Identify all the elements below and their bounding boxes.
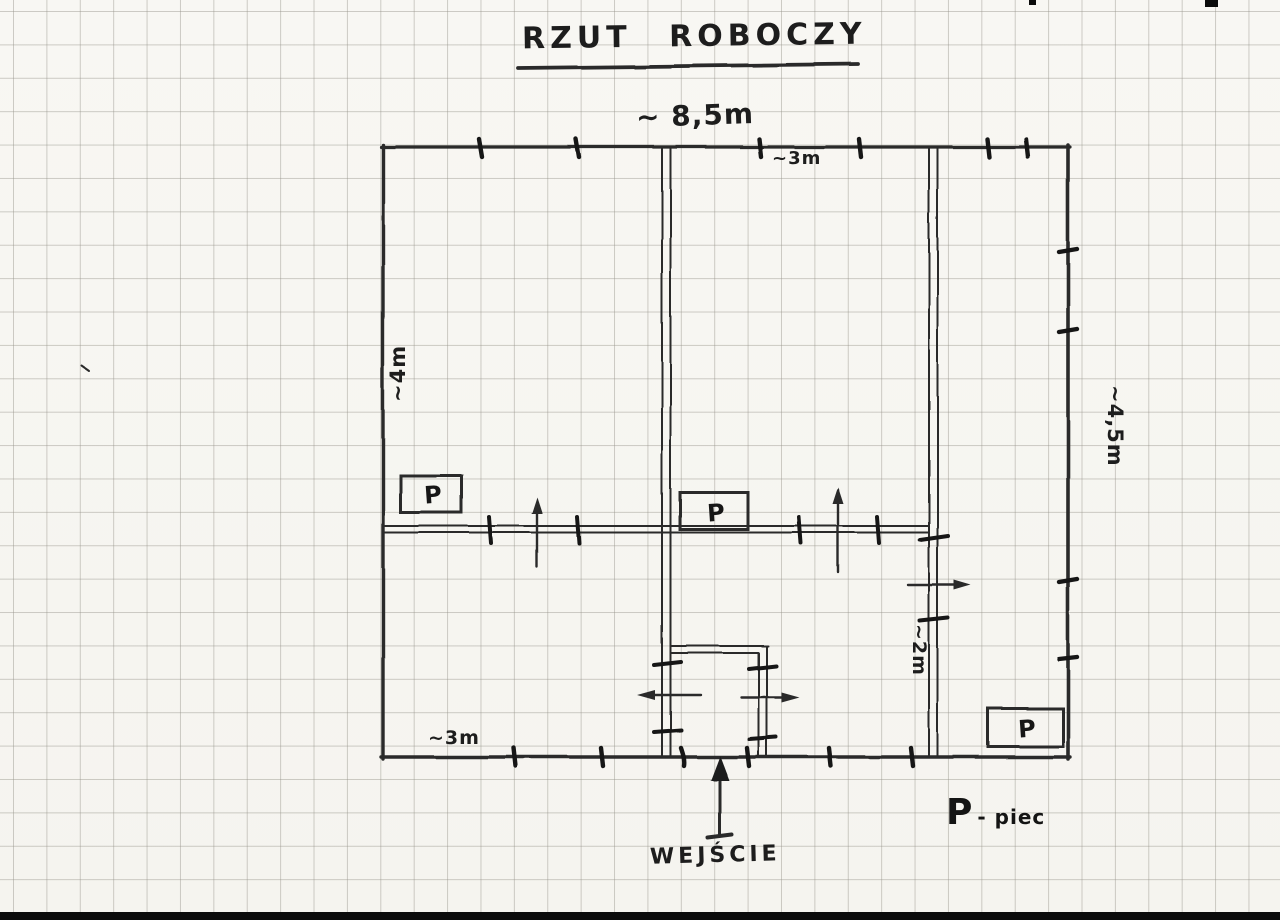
- window-tick: [829, 748, 831, 766]
- interior-wall-horizontal: [383, 526, 929, 533]
- plan-title: RZUT ROBOCZY: [522, 20, 867, 55]
- dimension-top-overall: ~ 8,5m: [636, 100, 755, 132]
- stove-label-3: P: [1017, 714, 1037, 743]
- floor-plan-drawing: [0, 0, 1280, 920]
- title-underline: [518, 64, 858, 68]
- door-tick: [654, 730, 681, 732]
- stove-boxes: [401, 476, 1064, 747]
- window-tick: [1059, 329, 1077, 332]
- arrow-head: [954, 580, 971, 590]
- dimension-hallway-width: ~2m: [909, 624, 928, 676]
- door-tick: [577, 517, 579, 543]
- door-tick: [920, 618, 948, 621]
- window-tick: [576, 139, 579, 157]
- window-tick: [1059, 579, 1077, 582]
- window-tick: [1059, 249, 1077, 252]
- window-tick: [514, 748, 516, 766]
- door-tick: [489, 517, 491, 543]
- window-tick: [747, 748, 749, 766]
- arrow-head: [781, 692, 799, 702]
- scan-edge-strip: [0, 912, 1280, 920]
- door-tick: [749, 666, 776, 669]
- interior-wall-vertical-2: [929, 147, 938, 757]
- window-tick: [681, 748, 684, 766]
- dimension-top-right: ~3m: [772, 150, 821, 168]
- outer-walls: [381, 145, 1070, 759]
- window-tick: [987, 139, 989, 157]
- arrow-head: [637, 690, 655, 700]
- legend-piec: P - piec: [946, 792, 1045, 833]
- window-tick: [1026, 139, 1028, 157]
- arrow-head: [711, 756, 730, 781]
- window-tick: [1059, 657, 1077, 659]
- arrow-head: [833, 487, 844, 504]
- door-tick: [749, 737, 776, 739]
- stove-label-2: P: [706, 498, 726, 527]
- scan-mark: [1205, 0, 1218, 7]
- window-tick: [911, 748, 913, 766]
- window-ticks: [479, 139, 1077, 766]
- arrow-head: [532, 497, 543, 514]
- legend-meaning: - piec: [977, 805, 1045, 829]
- entrance-label: WEJŚCIE: [650, 843, 781, 868]
- legend-symbol: P: [946, 792, 972, 833]
- door-tick: [799, 517, 801, 543]
- door-tick: [654, 662, 681, 665]
- scan-mark: [1029, 0, 1036, 5]
- dimension-left-height: ~4m: [388, 345, 409, 402]
- arrow-base-tick: [708, 835, 732, 838]
- window-tick: [859, 139, 861, 157]
- entrance-arrow: [708, 756, 732, 838]
- stray-pen-mark: [82, 366, 89, 371]
- dimension-right-height: ~4,5m: [1104, 385, 1125, 467]
- door-ticks: [489, 517, 948, 739]
- graph-paper-sheet: RZUT ROBOCZY ~ 8,5m ~3m ~4m ~4,5m ~2m ~3…: [0, 0, 1280, 920]
- door-tick: [920, 536, 948, 540]
- dimension-bottom-left: ~3m: [428, 729, 480, 748]
- window-tick: [601, 748, 603, 766]
- stove-label-1: P: [423, 480, 443, 509]
- window-tick: [479, 139, 482, 157]
- window-tick: [759, 139, 761, 157]
- door-tick: [877, 517, 879, 543]
